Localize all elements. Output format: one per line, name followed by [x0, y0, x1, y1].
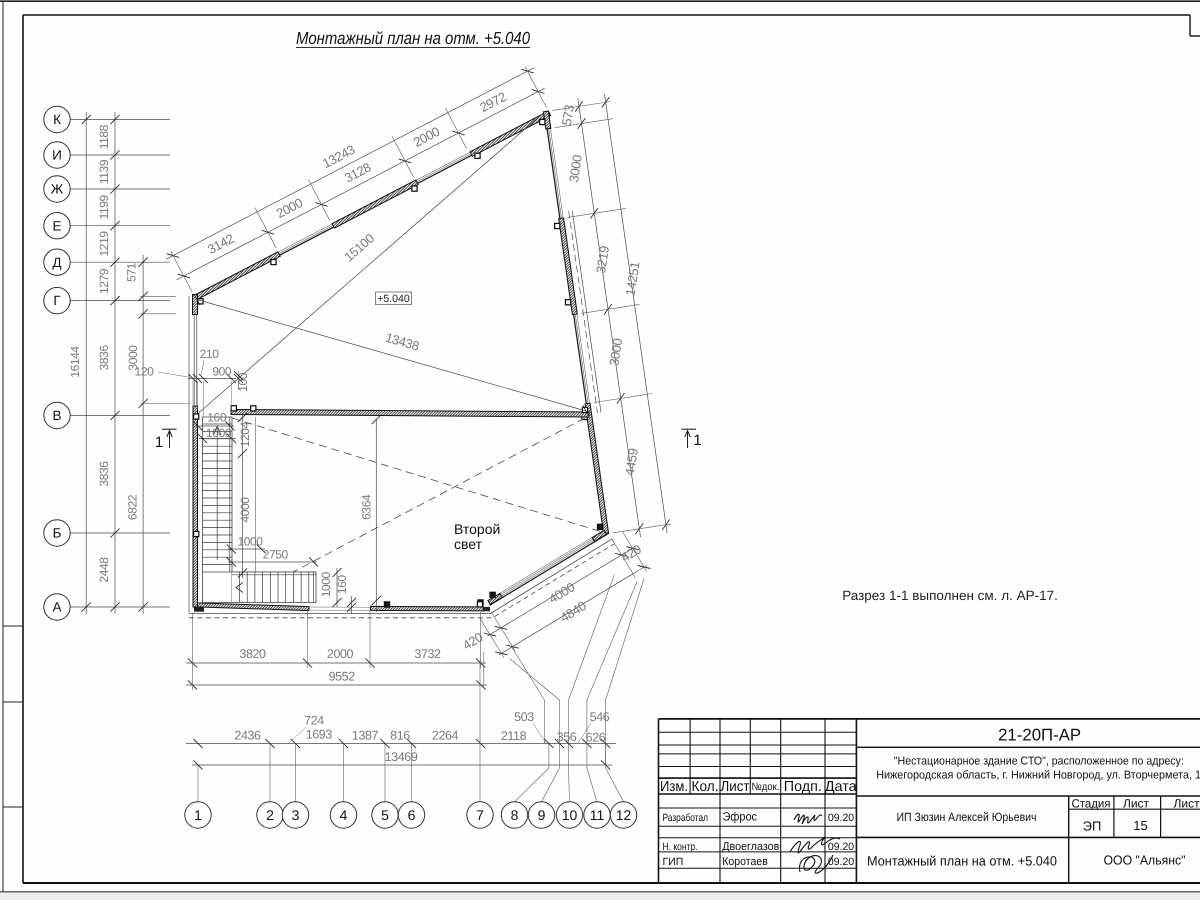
svg-text:571: 571 [125, 262, 139, 282]
svg-text:160: 160 [335, 575, 349, 595]
svg-text:ЭП: ЭП [1083, 819, 1102, 834]
svg-text:13469: 13469 [385, 750, 418, 764]
svg-text:2448: 2448 [97, 557, 111, 583]
svg-text:1219: 1219 [97, 231, 111, 257]
svg-text:Стадия: Стадия [1072, 797, 1111, 811]
svg-text:3732: 3732 [414, 647, 441, 661]
svg-text:1: 1 [155, 434, 163, 451]
svg-text:6364: 6364 [359, 494, 373, 520]
svg-text:Е: Е [52, 218, 61, 233]
svg-text:Б: Б [53, 526, 62, 541]
svg-text:900: 900 [212, 364, 232, 378]
svg-text:15: 15 [1133, 818, 1147, 833]
svg-text:1: 1 [693, 432, 701, 449]
svg-text:"Нестационарное здание СТО", р: "Нестационарное здание СТО", расположенн… [894, 756, 1184, 768]
svg-text:503: 503 [514, 710, 534, 724]
svg-text:Изм.: Изм. [660, 779, 688, 795]
svg-text:1387: 1387 [352, 729, 379, 743]
svg-text:12: 12 [616, 807, 632, 823]
svg-text:+5.040: +5.040 [377, 293, 410, 305]
svg-text:1188: 1188 [97, 124, 111, 149]
svg-text:ГИП: ГИП [663, 856, 684, 868]
svg-text:№док.: №док. [752, 781, 780, 793]
svg-text:Разрез 1-1 выполнен см. л. АР-: Разрез 1-1 выполнен см. л. АР-17. [842, 588, 1058, 603]
svg-text:21-20П-АР: 21-20П-АР [998, 726, 1081, 745]
svg-text:Лист: Лист [721, 779, 750, 795]
svg-text:724: 724 [304, 714, 324, 728]
svg-text:3: 3 [292, 807, 300, 823]
svg-text:1000: 1000 [237, 534, 263, 548]
svg-text:626: 626 [586, 731, 606, 745]
svg-text:2436: 2436 [234, 729, 261, 743]
svg-text:Дата: Дата [825, 779, 858, 795]
svg-text:ИП Зюзин Алексей Юрьевич: ИП Зюзин Алексей Юрьевич [897, 810, 1037, 824]
svg-text:546: 546 [590, 710, 610, 724]
svg-text:2750: 2750 [263, 548, 289, 562]
svg-text:4000: 4000 [238, 497, 252, 523]
svg-text:2000: 2000 [327, 647, 354, 661]
svg-text:9552: 9552 [329, 670, 356, 684]
svg-text:09.20: 09.20 [828, 841, 854, 853]
svg-text:6: 6 [408, 807, 416, 823]
svg-text:2: 2 [266, 807, 274, 823]
svg-text:ООО "Альянс": ООО "Альянс" [1104, 853, 1186, 868]
svg-text:Двоеглазов: Двоеглазов [722, 841, 779, 853]
svg-text:Второй: Второй [454, 521, 500, 537]
svg-text:Монтажный план на отм. +5.040: Монтажный план на отм. +5.040 [296, 28, 530, 48]
svg-text:120: 120 [135, 364, 155, 378]
svg-text:Коротаев: Коротаев [722, 856, 768, 868]
svg-text:свет: свет [454, 536, 483, 552]
svg-text:1: 1 [194, 807, 202, 823]
svg-text:Листов: Листов [1174, 797, 1200, 811]
svg-text:8: 8 [511, 807, 519, 823]
svg-text:7: 7 [476, 807, 484, 823]
svg-text:5: 5 [381, 807, 389, 823]
svg-text:09.20: 09.20 [828, 812, 854, 824]
svg-text:Подп.: Подп. [784, 779, 822, 795]
svg-text:И: И [52, 148, 62, 163]
svg-text:А: А [52, 600, 61, 615]
svg-text:Лист: Лист [1123, 797, 1150, 811]
svg-text:6822: 6822 [126, 494, 140, 520]
svg-text:1199: 1199 [97, 194, 111, 219]
svg-text:210: 210 [200, 347, 220, 361]
svg-text:3820: 3820 [239, 647, 266, 661]
svg-text:1693: 1693 [306, 728, 333, 742]
svg-text:Нижегородская область, г. Нижн: Нижегородская область, г. Нижний Новгоро… [876, 769, 1200, 781]
svg-text:9: 9 [538, 807, 546, 823]
svg-text:Д: Д [52, 255, 61, 270]
svg-text:Эфрос: Эфрос [723, 810, 758, 824]
svg-text:10: 10 [562, 807, 578, 823]
svg-text:573: 573 [559, 104, 577, 127]
svg-text:160: 160 [207, 411, 227, 425]
svg-text:К: К [53, 112, 61, 127]
svg-text:2264: 2264 [432, 729, 459, 743]
svg-text:11: 11 [590, 807, 605, 823]
svg-text:816: 816 [390, 729, 410, 743]
svg-text:3836: 3836 [97, 461, 111, 487]
svg-text:Г: Г [53, 293, 61, 308]
svg-text:1000: 1000 [206, 426, 232, 440]
svg-text:3836: 3836 [97, 345, 111, 371]
svg-text:1000: 1000 [319, 571, 333, 597]
svg-text:В: В [52, 408, 61, 423]
svg-text:Разработал: Разработал [663, 812, 709, 824]
svg-text:1204: 1204 [238, 421, 252, 447]
svg-text:16144: 16144 [68, 346, 82, 378]
svg-text:4: 4 [340, 807, 348, 823]
svg-text:Ж: Ж [51, 182, 64, 197]
svg-text:Монтажный план на отм. +5.040: Монтажный план на отм. +5.040 [867, 854, 1057, 869]
svg-text:1279: 1279 [97, 268, 111, 294]
svg-text:Кол.: Кол. [692, 779, 719, 795]
svg-text:1139: 1139 [97, 159, 111, 184]
svg-text:Н. контр.: Н. контр. [663, 841, 698, 853]
svg-text:2118: 2118 [501, 729, 527, 743]
